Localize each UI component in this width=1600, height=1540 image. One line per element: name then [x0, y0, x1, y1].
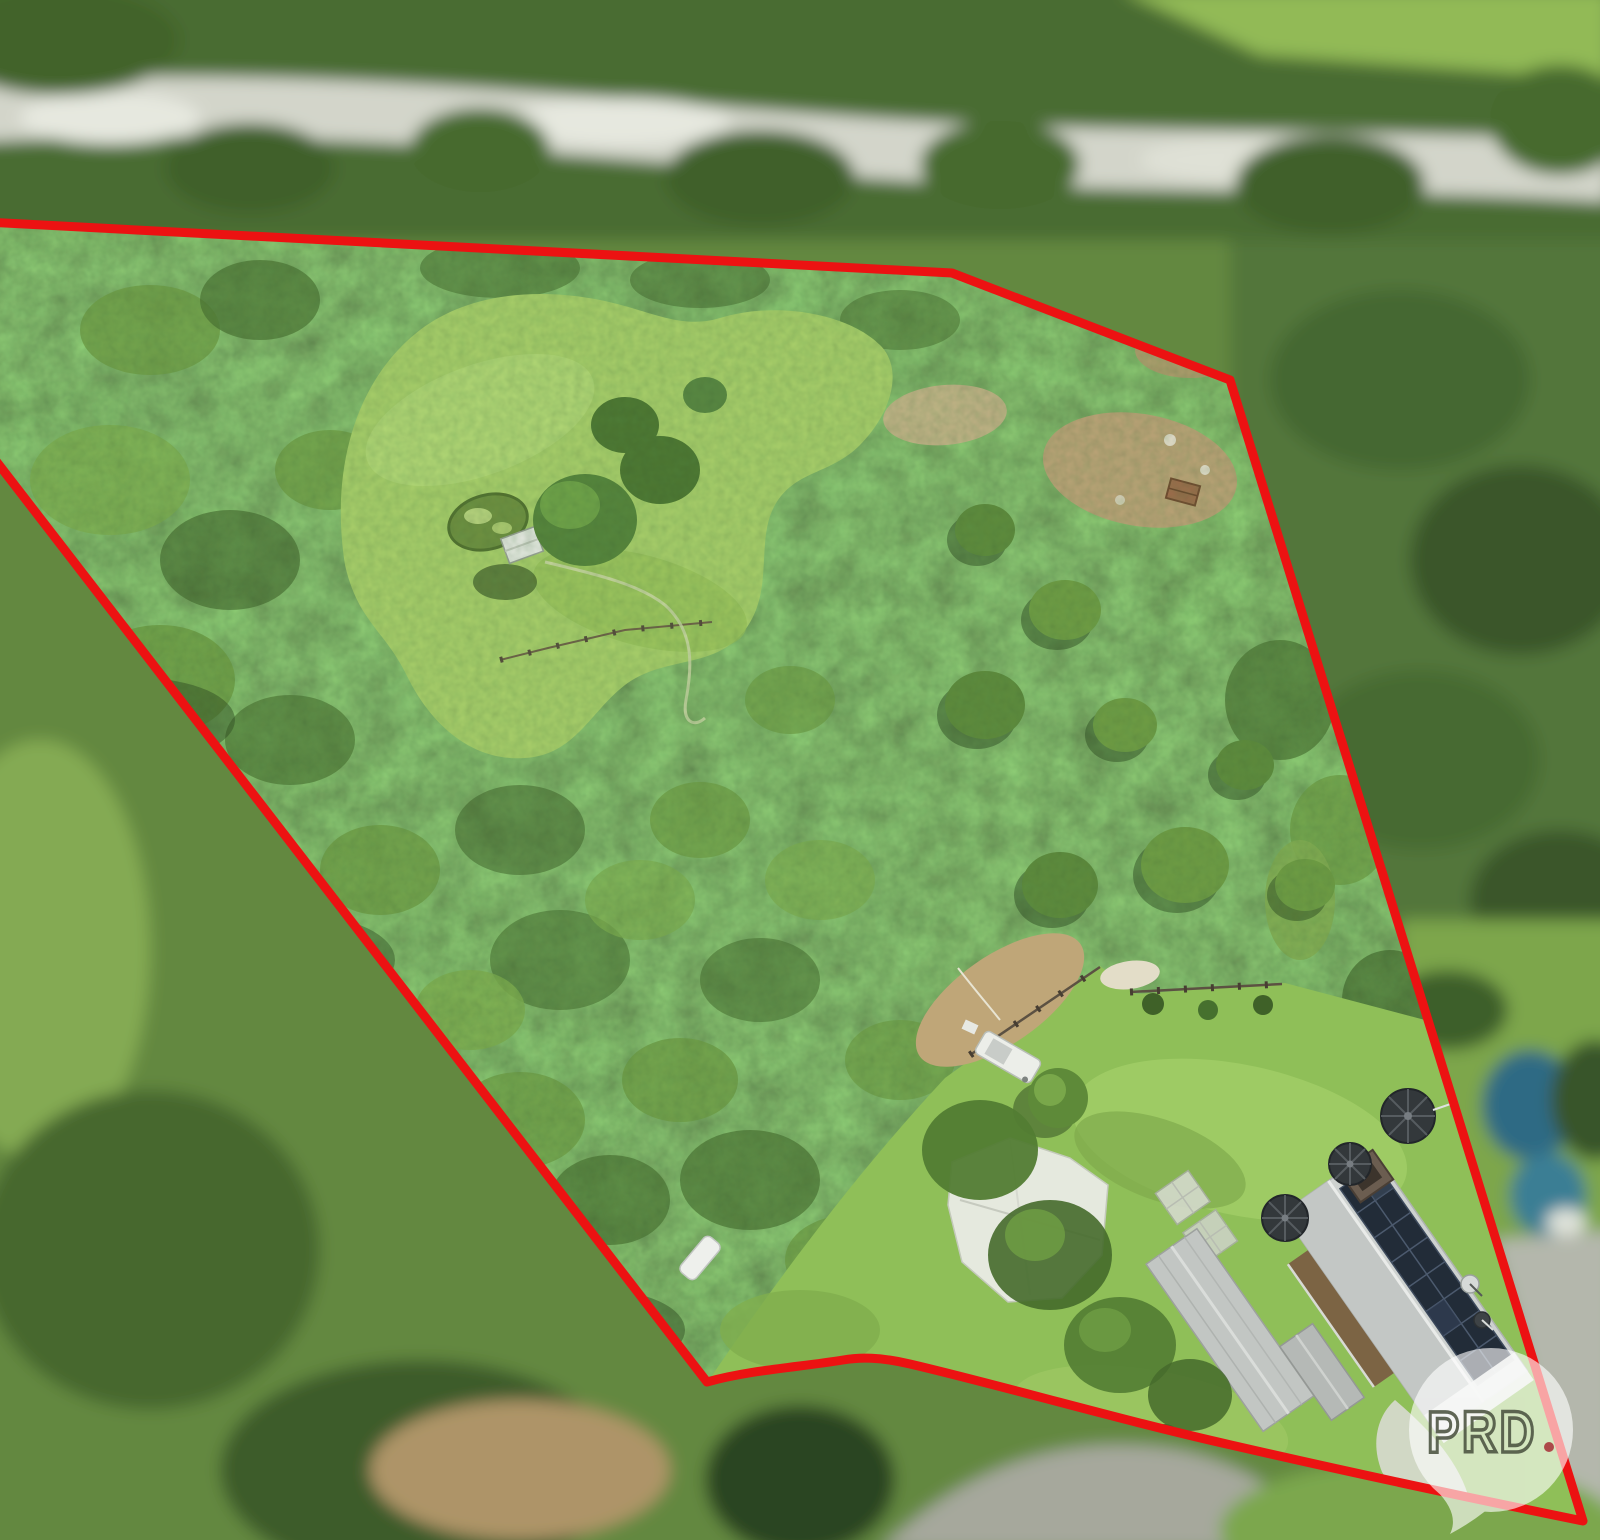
water-tank: [1381, 1089, 1435, 1143]
neighbour-car: [1546, 1208, 1586, 1236]
road-tree-clump: [665, 130, 855, 226]
overhang-tree-highlight: [1079, 1308, 1131, 1352]
watermark-logo-text: PRD: [1427, 1400, 1537, 1465]
watermark-logo-dot: [1544, 1442, 1554, 1452]
lawn-small-tree: [1198, 1000, 1218, 1020]
tree-crown-highlight: [1034, 1074, 1066, 1106]
watermark-logo: PRD: [1427, 1400, 1554, 1465]
overhang-tree: [1148, 1359, 1232, 1431]
right-forest-blob: [1270, 290, 1530, 470]
overhang-tree: [922, 1100, 1038, 1200]
overhang-tree-highlight: [1005, 1209, 1065, 1261]
bottom-dirt-patch: [370, 1400, 670, 1540]
lawn-small-tree: [1253, 995, 1273, 1015]
road-tree-clump: [920, 121, 1080, 209]
road-tree-clump: [165, 123, 335, 213]
aerial-photo: PRD: [0, 0, 1600, 1540]
water-tank: [1262, 1195, 1308, 1241]
road-tree-clump: [410, 108, 550, 192]
lawn-small-tree: [1142, 993, 1164, 1015]
road-patch: [20, 92, 200, 144]
road-tree-clump: [1235, 135, 1425, 235]
water-tank: [1329, 1143, 1371, 1185]
